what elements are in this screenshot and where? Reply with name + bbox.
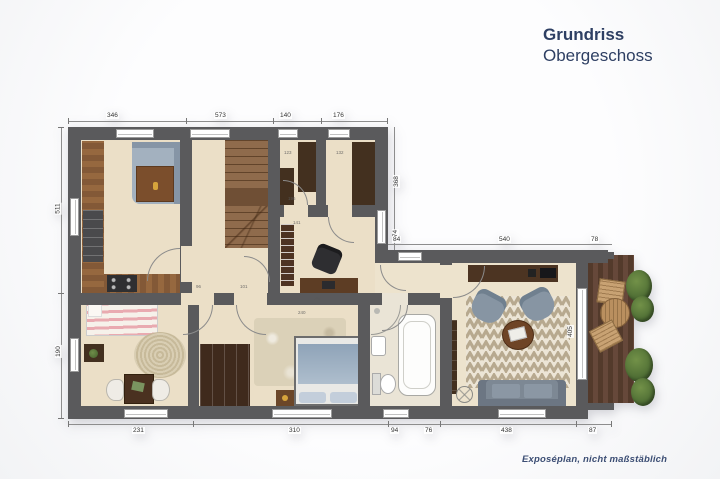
dimension-tick: [58, 418, 64, 419]
dimension-tick: [388, 421, 389, 427]
sofa-cushion: [492, 384, 520, 398]
bathtub-basin: [403, 321, 431, 389]
dim-label: 511: [55, 202, 62, 214]
dim-label-interior: 296: [314, 296, 322, 301]
bed-pillow: [330, 392, 357, 403]
door-opening: [284, 205, 308, 217]
window: [70, 198, 79, 236]
window: [124, 409, 168, 418]
storage-cabinet: [352, 142, 375, 205]
door-opening: [382, 293, 408, 305]
dimension-tick: [68, 421, 69, 427]
window: [328, 129, 350, 138]
bed-pillow: [299, 392, 326, 403]
toilet-bowl: [380, 374, 396, 394]
sink: [371, 336, 386, 356]
dim-label: 368: [393, 175, 400, 188]
lamp: [282, 395, 288, 401]
window: [498, 409, 546, 418]
dimension-line: [68, 424, 612, 425]
dim-label-interior: 132: [336, 150, 344, 155]
balcony-plant: [631, 378, 655, 406]
dim-label: 140: [279, 112, 292, 119]
window: [278, 129, 298, 138]
plan-disclaimer: Exposéplan, nicht maßstäblich: [522, 454, 667, 465]
table-handle-decor: [153, 182, 158, 190]
dim-label: 231: [132, 427, 145, 434]
dimension-tick: [193, 421, 194, 427]
dimension-tick: [186, 118, 187, 124]
staircase-winder: [225, 206, 268, 248]
dimension-tick: [321, 118, 322, 124]
window: [383, 409, 409, 418]
dim-label: 190: [55, 345, 62, 358]
dim-label-interior: 240: [298, 310, 306, 315]
storage-cabinet: [298, 142, 316, 192]
dimension-tick: [58, 293, 64, 294]
wall: [81, 293, 375, 305]
dim-label-interior: 101: [240, 284, 248, 289]
floorplan-canvas: 346 573 140 176 511 190 368 74 84 540 78…: [0, 0, 720, 479]
dim-label: 438: [500, 427, 513, 434]
kitchen-appliance-stack: [83, 210, 103, 262]
dimension-tick: [440, 421, 441, 427]
dim-label-interior: 96: [196, 284, 201, 289]
balcony-plant: [625, 348, 653, 382]
dimension-tick: [273, 118, 274, 124]
balcony-plant: [631, 296, 654, 322]
side-table-x: [456, 386, 473, 403]
plant-pot: [89, 349, 98, 358]
office-shelf: [281, 224, 294, 286]
dim-label: 573: [214, 112, 227, 119]
dim-label: 346: [106, 112, 119, 119]
window: [398, 252, 422, 261]
dim-label: 76: [424, 427, 433, 434]
shower-head: [374, 308, 380, 314]
dim-label: 310: [288, 427, 301, 434]
dimension-line: [61, 127, 62, 419]
window: [190, 129, 230, 138]
dimension-tick: [387, 118, 388, 124]
dim-label: 540: [498, 236, 511, 243]
door-opening: [328, 205, 352, 217]
wardrobe: [200, 344, 250, 406]
dim-label: 176: [332, 112, 345, 119]
dimension-tick: [68, 118, 69, 124]
balcony-parapet: [588, 403, 614, 410]
window: [116, 129, 154, 138]
balcony-parapet: [588, 252, 614, 259]
dim-label-interior: 141: [293, 220, 301, 225]
dim-label: 78: [590, 236, 599, 243]
dining-chair: [106, 379, 124, 401]
stove: [107, 275, 137, 292]
door-opening: [181, 293, 214, 305]
round-rug: [134, 332, 186, 378]
wall: [358, 305, 370, 406]
tv: [540, 268, 556, 278]
staircase-landing: [225, 188, 268, 206]
window: [70, 338, 79, 372]
dimension-tick: [576, 421, 577, 427]
sideboard-decor: [528, 269, 536, 277]
dimension-tick: [58, 127, 64, 128]
bed-blanket: [298, 344, 358, 384]
window: [272, 409, 332, 418]
dim-label-interior: 123: [284, 150, 292, 155]
wall: [68, 127, 81, 419]
dimension-line: [68, 121, 388, 122]
laptop: [322, 281, 335, 289]
dim-label: 94: [390, 427, 399, 434]
dim-label: 87: [588, 427, 597, 434]
wall: [316, 140, 326, 205]
door-opening: [234, 293, 267, 305]
sofa-cushion: [524, 384, 552, 398]
dimension-line: [388, 244, 612, 245]
balcony-door: [577, 288, 587, 380]
dim-label-interior: 196: [288, 196, 296, 201]
daybed-pillow: [88, 304, 102, 317]
dim-label: 84: [392, 236, 401, 243]
door-opening: [181, 246, 192, 282]
window: [377, 210, 386, 244]
dim-label: 405: [567, 325, 574, 338]
door-opening: [440, 265, 452, 298]
dimension-tick: [611, 421, 612, 427]
dining-chair: [152, 379, 170, 401]
